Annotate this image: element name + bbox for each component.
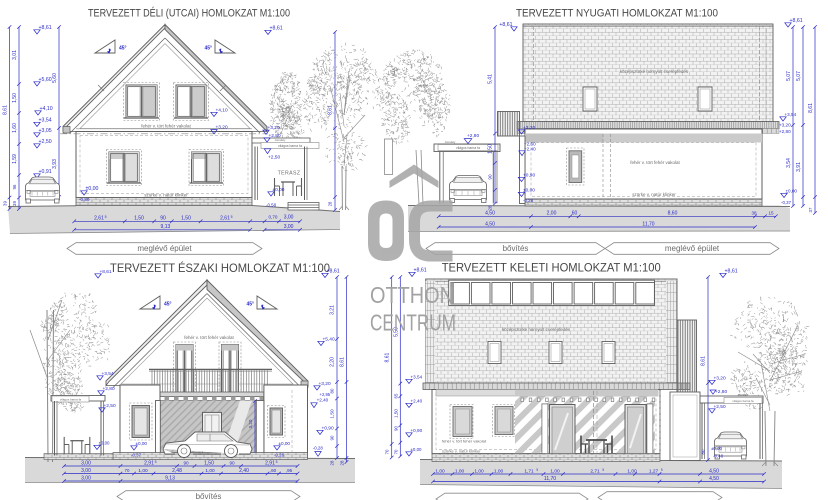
svg-text:1,00: 1,00 [455,469,465,475]
svg-text:4,50: 4,50 [709,469,719,475]
svg-text:+5,40: +5,40 [323,336,335,342]
svg-text:+2,40: +2,40 [317,397,329,402]
svg-text:2,00: 2,00 [547,210,557,216]
svg-text:zsindely: zsindely [445,140,456,144]
svg-text:5: 5 [536,468,538,472]
svg-text:+3,20: +3,20 [779,123,791,128]
svg-text:28: 28 [328,201,333,206]
svg-text:70: 70 [125,468,130,473]
svg-text:4,50: 4,50 [485,221,495,227]
svg-text:±0,00: ±0,00 [99,440,111,445]
svg-text:45°: 45° [164,302,172,308]
svg-text:TERVEZETT ÉSZAKI HOMLOKZAT M1: TERVEZETT ÉSZAKI HOMLOKZAT M1:100 [110,261,330,275]
svg-text:+0,90: +0,90 [322,425,334,431]
svg-text:+3,54: +3,54 [102,371,114,377]
svg-text:+2,40: +2,40 [524,146,536,151]
svg-text:világos barna fa: világos barna fa [278,144,302,148]
svg-text:fehér v. tört fehér vakolat: fehér v. tört fehér vakolat [630,160,680,165]
svg-text:9,13: 9,13 [165,476,175,482]
svg-text:±0,00: ±0,00 [411,447,423,452]
svg-text:1,00: 1,00 [627,469,637,475]
svg-text:1,50: 1,50 [393,409,398,418]
svg-text:fehér v. tört fehér vakolat: fehér v. tört fehér vakolat [141,124,191,129]
svg-text:5,07: 5,07 [786,71,792,81]
svg-text:CENTRUM: CENTRUM [370,310,456,336]
svg-text:+8,61: +8,61 [790,18,803,24]
svg-text:-0,28: -0,28 [523,198,534,203]
svg-text:3,00: 3,00 [81,476,91,482]
svg-text:3,20: 3,20 [248,419,253,428]
svg-text:világos barna fa: világos barna fa [732,399,754,403]
svg-text:3,91: 3,91 [796,162,802,172]
svg-text:2,61: 2,61 [94,215,104,221]
svg-text:+8,61: +8,61 [270,25,283,31]
svg-text:39: 39 [12,201,17,206]
svg-text:8,61: 8,61 [808,103,814,113]
svg-text:-0,37: -0,37 [131,453,142,458]
svg-text:TERVEZETT KELETI HOMLOKZAT M1: TERVEZETT KELETI HOMLOKZAT M1:100 [442,260,661,274]
svg-text:-0,28: -0,28 [274,453,285,458]
svg-text:meglévő épület: meglévő épület [137,244,192,253]
svg-text:+8,61: +8,61 [725,268,738,274]
svg-text:5: 5 [661,468,663,472]
svg-text:8,61: 8,61 [3,105,9,115]
svg-text:+5,60: +5,60 [39,77,52,83]
svg-text:3,00: 3,00 [81,468,91,474]
svg-text:70: 70 [385,449,390,454]
svg-text:±0,00: ±0,00 [523,187,535,193]
svg-text:1,00: 1,00 [550,469,560,475]
svg-text:zsindely: zsindely [738,393,749,397]
svg-text:5: 5 [276,460,278,464]
svg-text:1,00: 1,00 [205,468,215,474]
svg-text:+8,61: +8,61 [499,22,512,28]
svg-text:1,27: 1,27 [649,469,659,475]
svg-text:fehér v. tört fehér vakolat: fehér v. tört fehér vakolat [442,439,487,444]
svg-text:90: 90 [393,426,398,431]
svg-text:1,50: 1,50 [12,93,18,103]
svg-text:37: 37 [808,207,813,212]
svg-text:3,93: 3,93 [52,159,58,169]
svg-text:1,50: 1,50 [330,409,336,419]
svg-text:60: 60 [572,210,578,216]
svg-text:+3,05: +3,05 [39,128,52,134]
svg-text:+4,10: +4,10 [216,107,228,113]
svg-text:+3,20: +3,20 [714,375,726,381]
svg-text:28: 28 [330,460,335,465]
svg-text:+3,20: +3,20 [216,125,228,131]
svg-text:középszürke hornyolt cserépfed: középszürke hornyolt cserépfedés [502,327,571,332]
svg-text:1,71: 1,71 [524,469,534,475]
svg-text:bővítés: bővítés [503,244,529,253]
svg-text:65: 65 [393,393,398,398]
svg-text:+2,80: +2,80 [269,133,281,139]
svg-text:4,50: 4,50 [709,476,719,482]
svg-text:96: 96 [12,184,17,189]
svg-text:3,21: 3,21 [330,305,336,315]
svg-text:5: 5 [155,460,157,464]
svg-text:3,00: 3,00 [284,224,294,230]
svg-text:szürke v. natúr klinker: szürke v. natúr klinker [144,193,188,198]
svg-text:±0,00: ±0,00 [273,187,285,193]
svg-text:90: 90 [183,461,189,466]
svg-text:-0,28: -0,28 [313,446,324,451]
svg-text:39: 39 [3,201,8,206]
svg-text:90: 90 [330,435,335,440]
svg-text:+3,20: +3,20 [268,125,280,131]
svg-text:3,00: 3,00 [284,215,294,221]
svg-text:0,70: 0,70 [269,215,278,220]
svg-text:+2,50: +2,50 [714,404,726,410]
svg-text:+0,90: +0,90 [411,428,423,433]
svg-text:45°: 45° [246,302,254,308]
svg-text:5: 5 [602,468,604,472]
svg-text:±0,00: ±0,00 [711,446,723,451]
svg-text:középszürke hornyolt cserépfed: középszürke hornyolt cserépfedés [620,69,689,74]
svg-text:+2,80: +2,80 [467,133,479,139]
svg-text:bővítés: bővítés [196,492,222,500]
svg-text:világos barna fa: világos barna fa [456,146,480,150]
svg-text:OTTHON: OTTHON [370,282,454,308]
svg-text:2,48: 2,48 [172,468,182,474]
svg-text:45°: 45° [119,46,127,52]
svg-text:1,00: 1,00 [138,468,148,474]
svg-text:4,50: 4,50 [485,210,495,216]
svg-text:15: 15 [768,210,774,215]
svg-text:±0,00: ±0,00 [279,441,291,446]
svg-text:+3,20: +3,20 [523,125,535,131]
svg-text:90: 90 [488,174,493,180]
svg-text:±0,00: ±0,00 [786,188,798,193]
svg-text:+3,54: +3,54 [39,117,52,123]
svg-text:+8,61: +8,61 [100,269,112,275]
svg-text:+2,80: +2,80 [715,389,727,395]
svg-text:1,59: 1,59 [12,154,18,164]
svg-text:-0,37: -0,37 [781,200,792,205]
svg-text:1,50: 1,50 [488,144,494,154]
svg-text:28: 28 [340,460,345,465]
svg-text:5: 5 [231,215,233,219]
svg-text:szürke v. natúr klinker: szürke v. natúr klinker [632,192,676,197]
svg-text:,60: ,60 [270,468,277,473]
svg-text:szürke v. natúr klinker: szürke v. natúr klinker [442,449,481,454]
svg-text:9,13: 9,13 [161,224,171,230]
svg-text:2,20: 2,20 [330,357,336,367]
svg-text:5: 5 [105,215,107,219]
svg-text:5,41: 5,41 [488,74,494,84]
svg-text:1,00: 1,00 [494,469,504,475]
svg-text:1,50: 1,50 [134,215,144,221]
svg-text:11,70: 11,70 [544,476,556,482]
svg-text:1,00: 1,00 [435,469,445,475]
svg-text:3,00: 3,00 [81,461,91,467]
svg-text:-0,48: -0,48 [713,454,724,459]
svg-text:2,61: 2,61 [220,215,230,221]
svg-text:-0,80: -0,80 [79,197,90,202]
svg-text:TERASZ: TERASZ [278,171,301,177]
svg-text:világos barna fa: világos barna fa [60,397,82,401]
svg-text:+3,20: +3,20 [319,381,331,387]
svg-text:+8,61: +8,61 [414,267,427,273]
svg-text:45°: 45° [204,46,212,52]
svg-text:3,54: 3,54 [786,158,792,168]
svg-text:TERVEZETT DÉLI (UTCAI) HOMLOKZ: TERVEZETT DÉLI (UTCAI) HOMLOKZAT M1:100 [88,7,290,20]
svg-text:80: 80 [330,388,335,393]
svg-text:1,60: 1,60 [12,123,18,133]
svg-text:+2,50: +2,50 [104,403,116,409]
svg-text:fehér v. tört fehér vakolat: fehér v. tört fehér vakolat [184,335,234,340]
svg-text:+8,61: +8,61 [327,268,340,274]
svg-text:+3,54: +3,54 [411,374,423,379]
svg-text:+0,90: +0,90 [523,172,535,178]
svg-text:8,61: 8,61 [385,353,391,363]
svg-text:8,61: 8,61 [701,356,707,366]
svg-text:3,01: 3,01 [12,50,18,60]
svg-text:+4,10: +4,10 [40,106,53,112]
svg-text:1,50: 1,50 [181,215,191,221]
svg-text:5,07: 5,07 [796,71,802,81]
svg-text:+0,91: +0,91 [39,169,52,175]
svg-text:-0,58: -0,58 [266,203,277,208]
svg-text:11,70: 11,70 [642,221,654,227]
svg-text:+3,54: +3,54 [785,112,797,117]
svg-text:2,71: 2,71 [590,469,600,475]
svg-text:2,40: 2,40 [239,468,249,474]
svg-text:5,60: 5,60 [52,73,58,83]
svg-text:2,91: 2,91 [144,461,154,467]
svg-text:+2,50: +2,50 [39,139,52,145]
svg-text:8,60: 8,60 [668,210,678,216]
svg-text:1,00: 1,00 [474,469,484,475]
svg-text:70: 70 [393,449,398,454]
svg-text:TERVEZETT NYUGATI HOMLOKZAT M: TERVEZETT NYUGATI HOMLOKZAT M1:100 [516,8,718,20]
svg-text:+8,61: +8,61 [39,25,52,31]
svg-text:,95: ,95 [286,468,293,473]
svg-text:1,50: 1,50 [204,461,214,467]
svg-text:+2,80: +2,80 [779,129,791,134]
svg-text:+2,80: +2,80 [103,386,115,392]
svg-text:90: 90 [229,461,235,466]
svg-text:38: 38 [751,210,757,215]
svg-text:±0,00: ±0,00 [86,186,99,192]
svg-text:90: 90 [160,215,166,221]
svg-text:meglévő épület: meglévő épület [665,244,720,253]
svg-text:80: 80 [701,449,706,454]
svg-text:±0,00: ±0,00 [136,441,148,446]
svg-text:+2,40: +2,40 [411,398,423,403]
svg-text:8,61: 8,61 [340,357,346,367]
svg-text:+2,50: +2,50 [268,155,280,161]
svg-text:2,91: 2,91 [265,461,275,467]
